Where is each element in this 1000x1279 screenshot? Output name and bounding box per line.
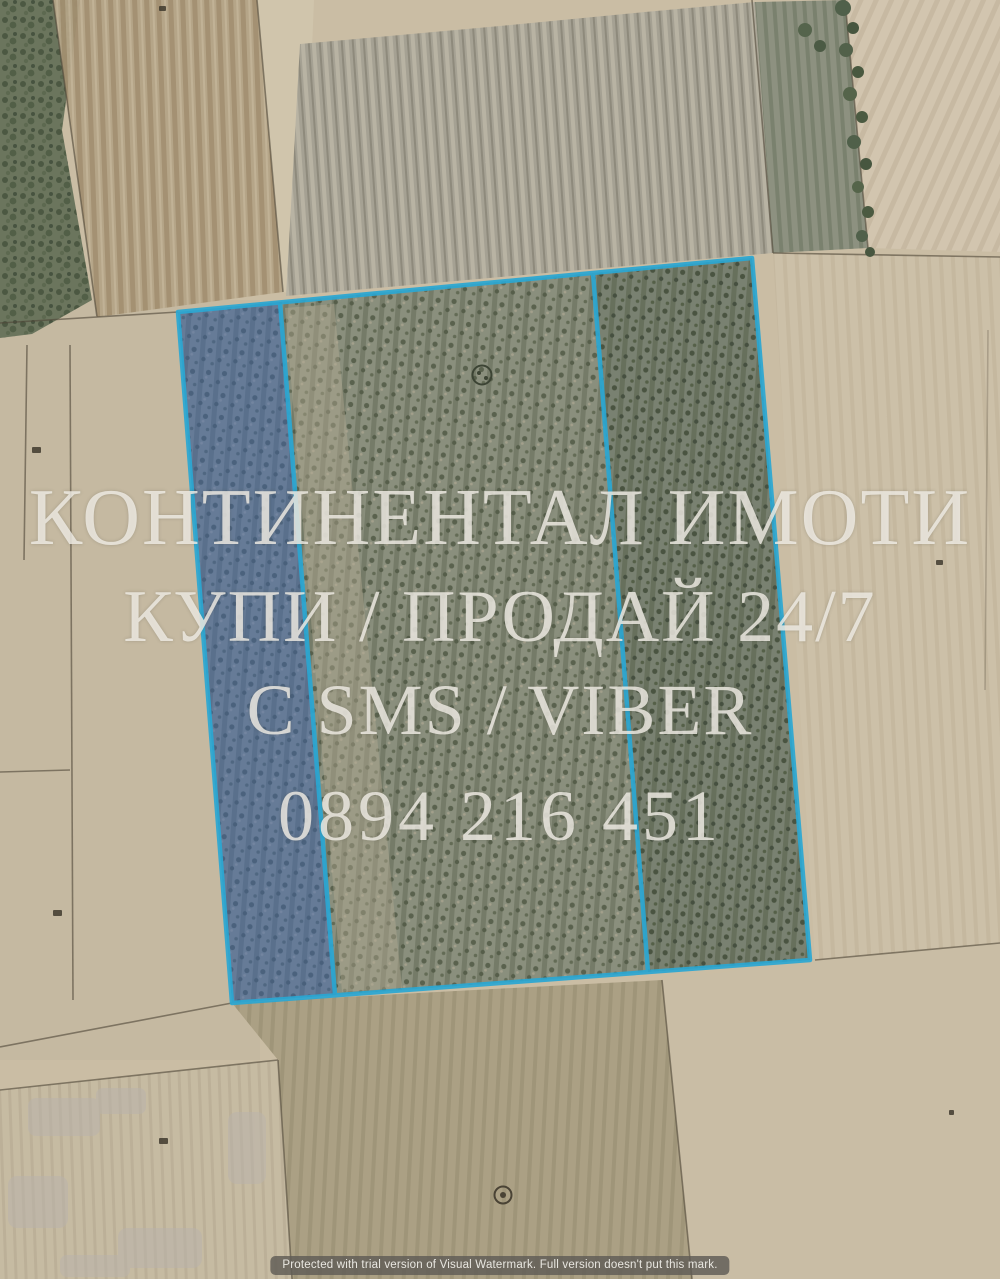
satellite-map-graphics xyxy=(0,0,1000,1279)
trial-watermark-bar: Protected with trial version of Visual W… xyxy=(270,1256,729,1275)
satellite-map-view: КОНТИНЕНТАЛ ИМОТИ КУПИ / ПРОДАЙ 24/7 С S… xyxy=(0,0,1000,1279)
trial-watermark-text: Protected with trial version of Visual W… xyxy=(282,1259,717,1271)
field-bottom-center xyxy=(232,980,692,1279)
field-grey-striped xyxy=(286,2,773,296)
